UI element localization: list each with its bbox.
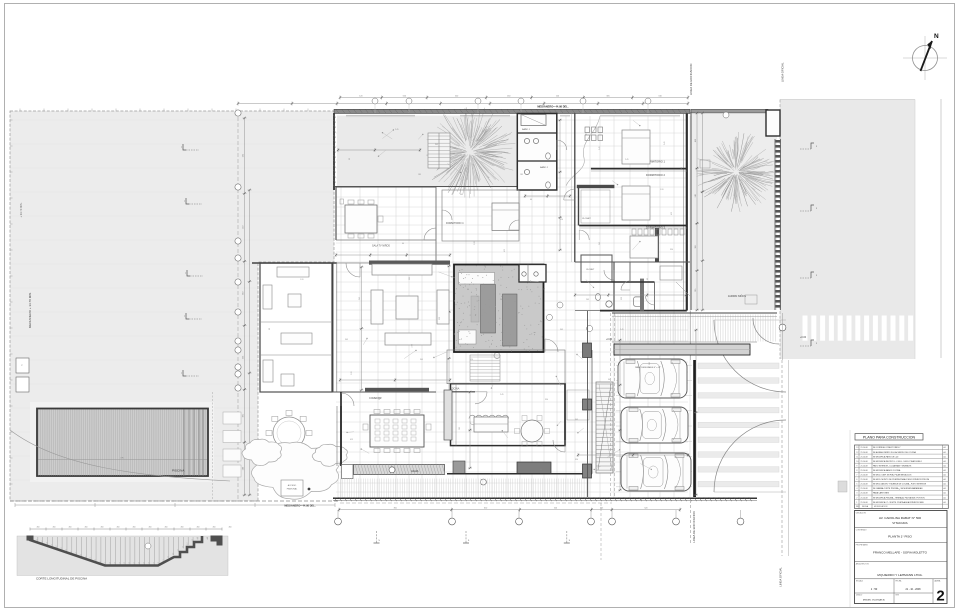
svg-text:450: 450 (695, 139, 697, 142)
svg-text:21 - 10 - 2008: 21 - 10 - 2008 (906, 588, 922, 591)
svg-text:CORTE LONGITUDINAL DE PISCINA: CORTE LONGITUDINAL DE PISCINA (36, 577, 87, 581)
svg-text:ACCESO: ACCESO (288, 484, 297, 487)
svg-text:450: 450 (149, 527, 152, 529)
svg-text:AGUA: AGUA (411, 469, 419, 473)
svg-text:LINEA OFICIAL: LINEA OFICIAL (781, 62, 785, 82)
svg-text:305: 305 (345, 339, 348, 341)
svg-text:245: 245 (500, 299, 503, 301)
svg-text:MEDIANERO + 33.70 MIN.: MEDIANERO + 33.70 MIN. (28, 292, 32, 328)
svg-text:350: 350 (621, 297, 623, 300)
svg-text:245: 245 (359, 297, 361, 300)
svg-text:MEDIANERO= 44.98 DEL.: MEDIANERO= 44.98 DEL. (284, 504, 315, 508)
svg-text:PLANTA 1° PISO: PLANTA 1° PISO (888, 535, 912, 539)
svg-text:LINEA DE EDIFICACION: LINEA DE EDIFICACION (692, 511, 696, 542)
svg-text:450: 450 (181, 527, 184, 529)
svg-text:350: 350 (670, 249, 673, 251)
svg-text:610: 610 (484, 508, 487, 510)
svg-text:60: 60 (544, 288, 546, 290)
svg-text:415: 415 (671, 212, 673, 215)
svg-text:21.10.08: 21.10.08 (861, 493, 868, 495)
svg-text:90: 90 (608, 379, 610, 381)
svg-text:MODIFICACION: MODIFICACION (874, 505, 888, 508)
svg-text:520: 520 (455, 95, 458, 97)
svg-text:COCINA: COCINA (450, 388, 460, 391)
svg-text:610: 610 (403, 95, 406, 97)
svg-text:BAÑO 1: BAÑO 1 (522, 128, 531, 131)
svg-text:PROPIETARIO: PROPIETARIO (856, 544, 869, 547)
svg-text:A-1: A-1 (944, 496, 947, 499)
svg-text:8: 8 (856, 470, 857, 472)
svg-text:21.10.08: 21.10.08 (861, 461, 868, 463)
svg-text:SE MODIFICA RECINT. LL.C.M.LL.: SE MODIFICA RECINT. LL.C.M.LL. S.M.S. PI… (873, 460, 922, 463)
svg-text:776: 776 (120, 458, 123, 460)
svg-text:AV. CAROLINA RABAT N° 500: AV. CAROLINA RABAT N° 500 (879, 516, 921, 520)
svg-text:ARQUITECTOS: ARQUITECTOS (856, 563, 870, 566)
svg-text:2.45: 2.45 (664, 142, 666, 146)
svg-text:A-1: A-1 (944, 492, 947, 495)
svg-text:185: 185 (520, 174, 523, 176)
svg-text:185: 185 (459, 427, 461, 430)
svg-text:A-1: A-1 (944, 501, 947, 504)
svg-text:SE MODIFICA BANOS COCINA: SE MODIFICA BANOS COCINA (873, 469, 901, 472)
svg-text:21.10.08: 21.10.08 (861, 452, 868, 454)
svg-text:SE MODIFICA PISCINA - TERRAZA.: SE MODIFICA PISCINA - TERRAZA. PILETA BD… (873, 496, 925, 499)
svg-text:60: 60 (349, 158, 351, 160)
svg-text:21.10.08: 21.10.08 (861, 497, 868, 499)
svg-text:1: 1 (856, 502, 857, 504)
svg-text:4: 4 (856, 488, 857, 490)
svg-text:21.10.08: 21.10.08 (861, 456, 868, 458)
svg-text:FRANCO MELLAFE - SOFIA MOLETTO: FRANCO MELLAFE - SOFIA MOLETTO (873, 551, 928, 555)
svg-text:A-1: A-1 (944, 478, 947, 481)
svg-text:305: 305 (420, 359, 423, 361)
svg-text:-1.2: -1.2 (197, 537, 199, 540)
svg-text:450: 450 (133, 527, 136, 529)
svg-text:1 : 50: 1 : 50 (871, 587, 878, 591)
svg-text:ESCALA: ESCALA (856, 580, 864, 583)
svg-text:MEDIANERO= 44.98 DEL.: MEDIANERO= 44.98 DEL. (537, 105, 568, 109)
svg-text:450: 450 (213, 527, 216, 529)
svg-text:A-1: A-1 (944, 446, 947, 449)
svg-text:1.20: 1.20 (660, 189, 664, 191)
svg-text:SE MOD. UNIF. SN PVA. PILAR ME: SE MOD. UNIF. SN PVA. PILAR METALICOS (873, 474, 912, 477)
svg-text:450: 450 (117, 527, 120, 529)
svg-text:-1.2: -1.2 (187, 542, 189, 545)
svg-text:DORMITORIO 4: DORMITORIO 4 (446, 222, 464, 225)
svg-text:305: 305 (600, 508, 603, 510)
svg-text:PATIO INTERIOR - LUCARNAS Y MU: PATIO INTERIOR - LUCARNAS Y MUEBLES (873, 464, 912, 467)
svg-text:6: 6 (856, 479, 857, 481)
svg-text:2: 2 (936, 588, 944, 605)
svg-text:A-1: A-1 (944, 451, 947, 454)
svg-text:305: 305 (606, 95, 609, 97)
svg-text:SE MOD. ANCHO Y MUEBLE DE COCI: SE MOD. ANCHO Y MUEBLE DE COCINA - PUITO… (873, 483, 927, 486)
svg-text:21.10.08: 21.10.08 (861, 470, 868, 472)
svg-text:A-1: A-1 (944, 469, 947, 472)
svg-text:610: 610 (659, 95, 662, 97)
svg-text:IZQUIERDO Y LEHMANN LTDA.: IZQUIERDO Y LEHMANN LTDA. (877, 573, 923, 577)
svg-text:PISCINA: PISCINA (172, 469, 185, 473)
svg-text:245: 245 (599, 242, 601, 245)
svg-text:2: 2 (856, 497, 857, 499)
svg-text:21.10.08: 21.10.08 (861, 447, 868, 449)
svg-text:185: 185 (695, 289, 697, 292)
svg-text:SE MODIFICA PATIO DE LUZ: SE MODIFICA PATIO DE LUZ (873, 455, 899, 458)
svg-text:60: 60 (467, 289, 469, 291)
svg-text:450: 450 (197, 527, 200, 529)
svg-text:SE MOD. MONTO DE PUERTA PVA AC: SE MOD. MONTO DE PUERTA PVA ACCESO INTER… (873, 478, 929, 481)
svg-text:305: 305 (460, 194, 463, 196)
svg-text:N: N (934, 33, 939, 40)
svg-text:LINEA DE EDIFICACION: LINEA DE EDIFICACION (689, 64, 693, 95)
svg-text:+0.00: +0.00 (800, 336, 807, 339)
svg-text:60: 60 (530, 199, 532, 201)
svg-text:CLOSET: CLOSET (582, 218, 591, 220)
svg-text:450: 450 (101, 527, 104, 529)
svg-text:450: 450 (229, 527, 232, 529)
svg-text:21.10.08: 21.10.08 (861, 502, 868, 504)
svg-text:185: 185 (418, 174, 421, 176)
svg-text:21.10.08: 21.10.08 (861, 475, 868, 477)
svg-text:12: 12 (856, 452, 858, 454)
svg-text:1.20: 1.20 (300, 279, 304, 281)
svg-text:305: 305 (560, 329, 563, 331)
svg-text:350: 350 (379, 397, 381, 400)
svg-text:-1.2: -1.2 (173, 553, 175, 556)
svg-text:120: 120 (556, 95, 559, 97)
svg-text:LINEA OFICIAL: LINEA OFICIAL (779, 567, 783, 587)
svg-text:305: 305 (242, 356, 244, 359)
svg-text:450: 450 (53, 527, 56, 529)
svg-text:90: 90 (640, 499, 642, 501)
svg-text:BAÑO 2: BAÑO 2 (540, 166, 549, 169)
svg-text:360: 360 (242, 292, 244, 295)
svg-text:240: 240 (695, 194, 697, 197)
svg-text:5: 5 (856, 484, 857, 486)
svg-text:21.10.08: 21.10.08 (861, 488, 868, 490)
svg-text:245: 245 (586, 299, 589, 301)
svg-text:120: 120 (242, 226, 244, 229)
svg-text:A-1: A-1 (944, 460, 947, 463)
svg-text:2.45: 2.45 (599, 147, 601, 151)
svg-text:2.45: 2.45 (620, 329, 624, 331)
svg-text:2.45: 2.45 (625, 159, 629, 161)
svg-text:60: 60 (402, 243, 404, 245)
svg-text:305: 305 (435, 144, 438, 146)
svg-text:PEATONAL: PEATONAL (287, 488, 298, 491)
svg-text:21.10.08: 21.10.08 (861, 484, 868, 486)
svg-text:415: 415 (504, 249, 506, 252)
svg-text:120: 120 (359, 95, 362, 97)
svg-text:11: 11 (856, 456, 858, 458)
svg-text:SALA TV NIÑOS: SALA TV NIÑOS (372, 245, 390, 248)
svg-text:60: 60 (647, 278, 649, 280)
svg-text:13: 13 (856, 447, 858, 449)
svg-text:9: 9 (856, 465, 857, 467)
svg-text:245: 245 (681, 167, 683, 170)
svg-text:350: 350 (439, 317, 441, 320)
svg-text:60: 60 (585, 134, 587, 136)
svg-text:350: 350 (575, 459, 578, 461)
svg-text:450: 450 (507, 95, 510, 97)
svg-text:245: 245 (649, 362, 651, 365)
svg-text:A-1: A-1 (944, 487, 947, 490)
svg-text:305: 305 (575, 419, 578, 421)
svg-text:PARA CARTONES: PARA CARTONES (873, 492, 890, 495)
svg-text:A-1: A-1 (944, 474, 947, 477)
svg-text:21.10.08: 21.10.08 (861, 479, 868, 481)
svg-text:VITACURA: VITACURA (892, 521, 908, 525)
svg-text:-1.2: -1.2 (182, 546, 184, 549)
svg-text:+ 33.70 MIN.: + 33.70 MIN. (19, 202, 23, 217)
svg-text:2.45: 2.45 (500, 394, 504, 396)
svg-text:SE ALINEA CIERRO SG LACUERDO D: SE ALINEA CIERRO SG LACUERDO DE COCINA (873, 451, 916, 454)
svg-text:+0.00: +0.00 (606, 338, 613, 341)
svg-text:305: 305 (242, 414, 244, 417)
svg-text:185: 185 (242, 154, 244, 157)
svg-text:305: 305 (409, 277, 411, 280)
svg-text:450: 450 (165, 527, 168, 529)
svg-text:520: 520 (470, 359, 473, 361)
svg-text:PLANO PARA CONSTRUCCION: PLANO PARA CONSTRUCCION (863, 435, 916, 439)
svg-text:FECHA: FECHA (896, 580, 903, 583)
svg-text:MIGUEL VILLEGAS B.: MIGUEL VILLEGAS B. (863, 599, 886, 602)
svg-text:A-1: A-1 (944, 455, 947, 458)
svg-text:PAVE. DESLIZABLE 4" x 12": PAVE. DESLIZABLE 4" x 12" (635, 366, 661, 369)
svg-text:360: 360 (695, 245, 697, 248)
svg-text:LAMINA: LAMINA (934, 580, 941, 583)
svg-text:520: 520 (644, 508, 647, 510)
svg-text:3: 3 (856, 493, 857, 495)
svg-text:A-1: A-1 (944, 464, 947, 467)
svg-text:DORMITORIO 2: DORMITORIO 2 (646, 173, 666, 177)
svg-text:7: 7 (856, 475, 857, 477)
svg-text:CLOSET: CLOSET (586, 269, 595, 271)
svg-text:90: 90 (540, 469, 542, 471)
svg-text:450: 450 (85, 527, 88, 529)
svg-text:DIBUJO: DIBUJO (856, 595, 863, 597)
svg-text:CONTENIDO: CONTENIDO (856, 530, 867, 532)
svg-text:450: 450 (37, 527, 40, 529)
svg-text:FECHA: FECHA (862, 505, 869, 508)
svg-text:21.10.08: 21.10.08 (861, 465, 868, 467)
svg-text:SE CORRIGE CONECTORES Y: SE CORRIGE CONECTORES Y (873, 447, 901, 449)
svg-text:350: 350 (545, 399, 548, 401)
svg-text:520: 520 (554, 508, 557, 510)
svg-text:2.45: 2.45 (395, 129, 399, 131)
svg-text:415: 415 (350, 439, 353, 441)
svg-text:305: 305 (394, 508, 397, 510)
svg-text:-1.2: -1.2 (37, 539, 39, 542)
svg-text:-1.2: -1.2 (207, 537, 209, 540)
svg-text:240: 240 (242, 467, 244, 470)
svg-text:1.20: 1.20 (351, 372, 353, 376)
svg-text:SE CAMBIA CORTE PISCINA ¿ SE M: SE CAMBIA CORTE PISCINA ¿ SE MUEVEN BARA… (873, 487, 923, 490)
svg-text:A-1: A-1 (944, 483, 947, 486)
svg-text:UBICACION: UBICACION (856, 512, 867, 515)
svg-text:10: 10 (856, 461, 858, 463)
svg-text:60: 60 (269, 328, 271, 330)
svg-text:SE MODIFICA LT - 38 MTS. PILET: SE MODIFICA LT - 38 MTS. PILETA AGUA INT… (873, 501, 924, 504)
svg-text:520: 520 (560, 219, 563, 221)
svg-text:450: 450 (69, 527, 72, 529)
svg-text:1.20: 1.20 (474, 242, 476, 246)
